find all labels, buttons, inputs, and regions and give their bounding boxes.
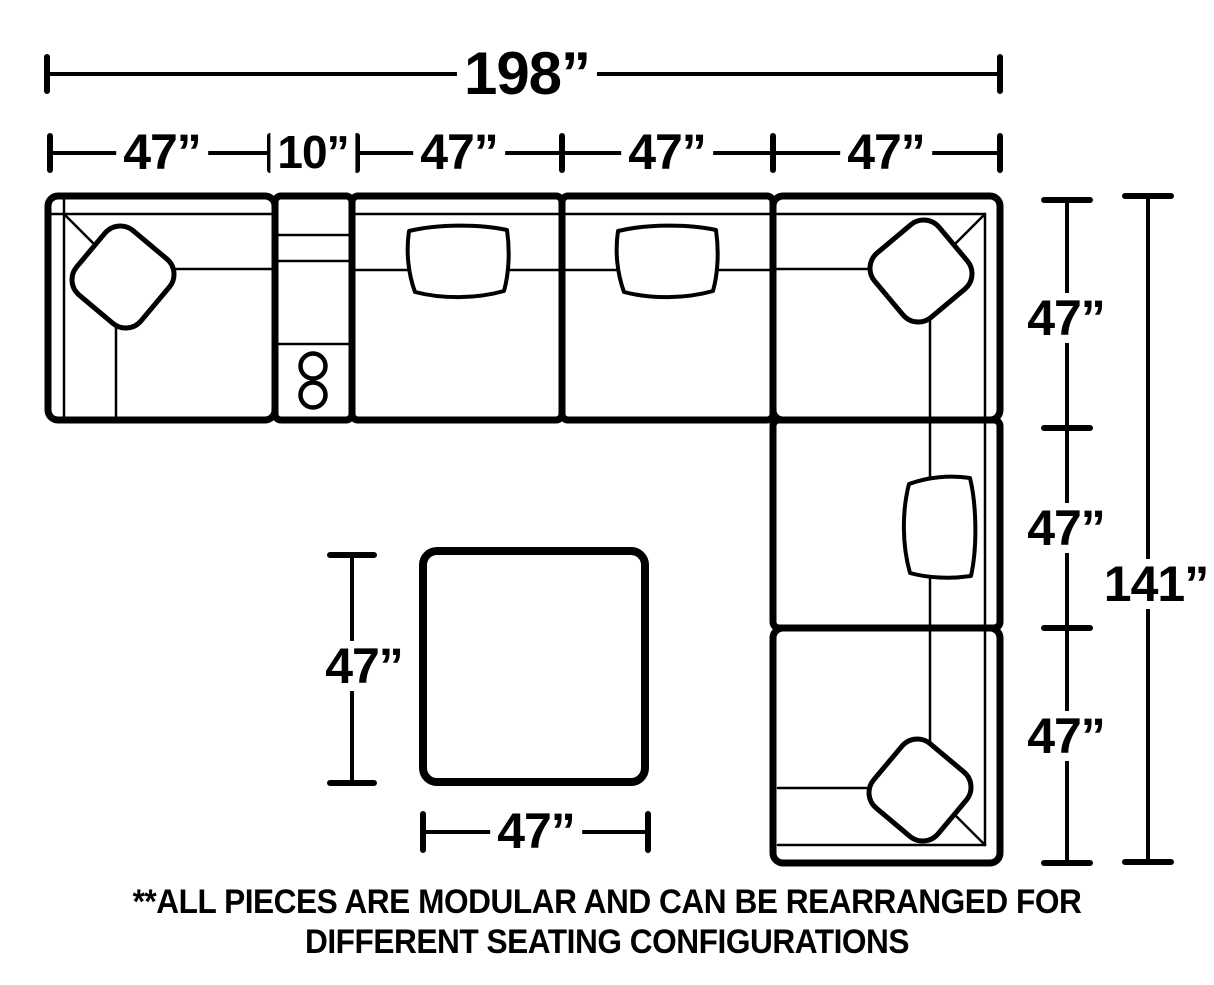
dim-line-overall-height (1125, 196, 1171, 862)
dim-label-overall-height: 141” (1097, 559, 1214, 609)
cupholder (301, 354, 326, 379)
dim-label-top-seg-4: 47” (621, 127, 713, 177)
piece-armless-chair-1 (352, 196, 562, 420)
dim-label-overall-width: 198” (457, 44, 597, 104)
dim-label-top-seg-1: 47” (116, 127, 208, 177)
dim-label-right-seg-2: 47” (1020, 503, 1112, 553)
back-cushion (408, 226, 509, 298)
piece-right-armless-chair (773, 420, 1000, 628)
piece-outline (48, 196, 275, 420)
modular-note-line-1: **ALL PIECES ARE MODULAR AND CAN BE REAR… (42, 882, 1171, 922)
piece-console (275, 196, 352, 420)
dim-label-top-seg-3: 47” (413, 127, 505, 177)
modular-note-line-2: DIFFERENT SEATING CONFIGURATIONS (42, 922, 1171, 962)
dim-label-ottoman-width: 47” (490, 806, 582, 856)
modular-note: **ALL PIECES ARE MODULAR AND CAN BE REAR… (42, 882, 1171, 962)
piece-right-corner-sofa (773, 196, 1000, 420)
back-cushion (904, 477, 976, 578)
dim-label-right-seg-1: 47” (1020, 293, 1112, 343)
cupholder (301, 383, 326, 408)
dim-label-right-seg-3: 47” (1020, 711, 1112, 761)
dim-label-ottoman-height: 47” (318, 641, 410, 691)
piece-outline (423, 551, 645, 782)
sectional-dimension-diagram: 198” 47” 10” 47” 47” 47” 47” 47” 47” 141… (0, 0, 1214, 985)
piece-right-bottom-corner-sofa (773, 628, 1000, 863)
piece-ottoman (423, 551, 645, 782)
piece-outline (773, 628, 1000, 863)
piece-outline (773, 196, 1000, 420)
dim-label-top-seg-2: 10” (270, 129, 355, 175)
piece-armless-chair-2 (562, 196, 773, 420)
piece-left-corner-sofa (48, 196, 275, 420)
back-cushion (617, 226, 718, 298)
dim-label-top-seg-5: 47” (840, 127, 932, 177)
